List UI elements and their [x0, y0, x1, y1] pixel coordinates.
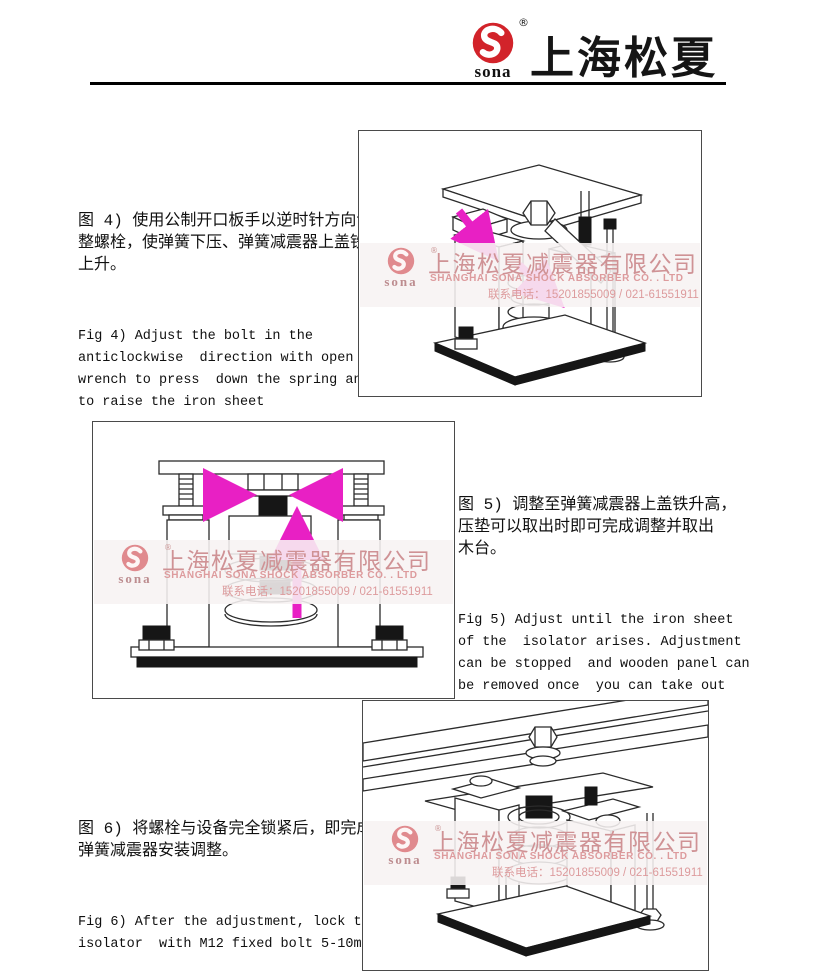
figure-4-image: ® sona 上海松夏减震器有限公司 SHANGHAI SONA SHOCK A… — [358, 130, 702, 397]
watermark-band: ® sona 上海松夏减震器有限公司 SHANGHAI SONA SHOCK A… — [94, 540, 453, 604]
sona-logo-icon — [470, 20, 516, 66]
watermark-band: ® sona 上海松夏减震器有限公司 SHANGHAI SONA SHOCK A… — [364, 821, 707, 885]
watermark-company-en: SHANGHAI SONA SHOCK ABSORBER CO. . LTD — [434, 851, 688, 862]
watermark-sona-icon: ® sona — [112, 543, 158, 587]
watermark-sona-text: sona — [378, 274, 424, 290]
text-block-fig6: 图 6) 将螺栓与设备完全锁紧后，即完成 弹簧减震器安装调整。 Fig 6) A… — [78, 782, 378, 977]
watermark-sona-text: sona — [112, 571, 158, 587]
watermark-company-en: SHANGHAI SONA SHOCK ABSORBER CO. . LTD — [430, 273, 684, 284]
fig5-caption-cn: 图 5) 调整至弹簧减震器上盖铁升高， 压垫可以取出时即可完成调整并取出 木台。 — [458, 494, 750, 560]
brand-title: 上海松夏 — [530, 22, 718, 86]
header-rule — [90, 82, 726, 85]
fig4-caption-cn: 图 4) 使用公制开口板手以逆时针方向调 整螺栓，使弹簧下压、弹簧减震器上盖铁 … — [78, 210, 364, 276]
watermark-phone: 联系电话：15201855009 / 021-61551911 — [492, 864, 703, 880]
fig4-caption-en: Fig 4) Adjust the bolt in the anticlockw… — [78, 326, 364, 414]
registered-mark: ® — [518, 16, 529, 29]
watermark-company-en: SHANGHAI SONA SHOCK ABSORBER CO. . LTD — [164, 570, 418, 581]
manual-page: ® sona 上海松夏 图 4) 使用公制开口板手以逆时针方向调 整螺栓，使弹簧… — [0, 0, 813, 977]
figure-6-image: ® sona 上海松夏减震器有限公司 SHANGHAI SONA SHOCK A… — [362, 700, 709, 971]
watermark-band: ® sona 上海松夏减震器有限公司 SHANGHAI SONA SHOCK A… — [360, 243, 700, 307]
figure-5-image: ® sona 上海松夏减震器有限公司 SHANGHAI SONA SHOCK A… — [92, 421, 455, 699]
watermark-sona-text: sona — [382, 852, 428, 868]
fig6-caption-en: Fig 6) After the adjustment, lock the is… — [78, 912, 378, 956]
watermark-sona-icon: ® sona — [382, 824, 428, 868]
watermark-phone: 联系电话：15201855009 / 021-61551911 — [488, 286, 699, 302]
watermark-phone: 联系电话：15201855009 / 021-61551911 — [222, 583, 433, 599]
sona-wordmark: sona — [462, 62, 524, 82]
fig6-caption-cn: 图 6) 将螺栓与设备完全锁紧后，即完成 弹簧减震器安装调整。 — [78, 818, 378, 862]
text-block-fig4: 图 4) 使用公制开口板手以逆时针方向调 整螺栓，使弹簧下压、弹簧减震器上盖铁 … — [78, 174, 364, 450]
watermark-sona-icon: ® sona — [378, 246, 424, 290]
